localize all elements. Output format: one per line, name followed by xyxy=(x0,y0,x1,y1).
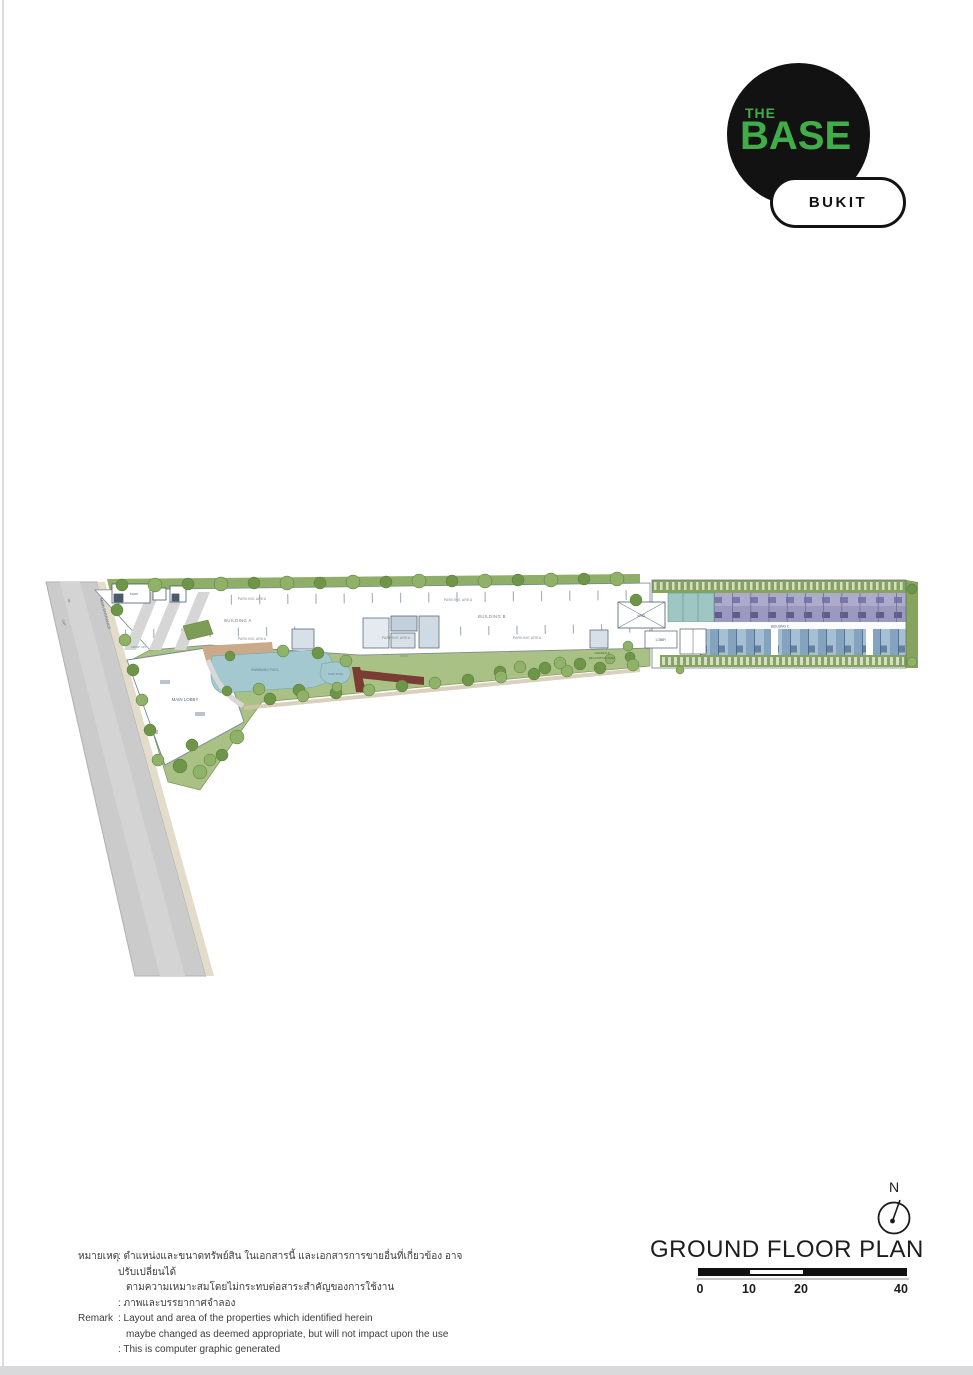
remark-block: หมายเหตุ : ตำแหน่งและขนาดทรัพย์สิน ในเอก… xyxy=(78,1249,478,1358)
remark-thai-line1: : ตำแหน่งและขนาดทรัพย์สิน ในเอกสารนี้ แล… xyxy=(118,1249,478,1280)
remark-thai-label: หมายเหตุ xyxy=(78,1249,118,1280)
remark-thai-line3: : ภาพและบรรยากาศจำลอง xyxy=(118,1296,235,1312)
plan-title: GROUND FLOOR PLAN xyxy=(650,1236,912,1264)
scale-tick-40: 40 xyxy=(889,1282,913,1296)
label-building-b: BUILDING B xyxy=(478,614,506,619)
remark-en-line1: : Layout and area of the properties whic… xyxy=(118,1311,373,1327)
brochure-page: THE BASE BUKIT xyxy=(0,0,973,1375)
scale-tick-0: 0 xyxy=(688,1282,712,1296)
logo-base-text: BASE xyxy=(740,114,851,159)
scale-tick-10: 10 xyxy=(737,1282,761,1296)
label-building-c: BUILDING C xyxy=(771,625,790,629)
label-parking-5: PARKING AREA xyxy=(513,636,542,640)
label-garden-2: RELAXATION AREA xyxy=(589,656,616,660)
label-lobby: LOBBY xyxy=(656,638,668,642)
scale-bar xyxy=(698,1268,907,1276)
label-garden-1: GARDEN & xyxy=(594,651,609,655)
label-swimming-pool: SWIMMING POOL xyxy=(251,668,279,672)
remark-en-line3: : This is computer graphic generated xyxy=(118,1342,280,1358)
scale-seg-2 xyxy=(750,1268,803,1276)
project-badge-label: BUKIT xyxy=(809,194,867,211)
north-arrow: N xyxy=(873,1178,915,1240)
north-label: N xyxy=(889,1179,899,1195)
remark-thai-line2: ตามความเหมาะสมโดยไม่กระทบต่อสาระสำคัญของ… xyxy=(118,1280,394,1296)
label-drop-off: DROP OFF xyxy=(132,645,147,649)
label-main-lobby: MAIN LOBBY xyxy=(172,697,199,702)
label-parking-2: PARKING AREA xyxy=(238,637,267,641)
scale-tick-20: 20 xyxy=(789,1282,813,1296)
scale-seg-1 xyxy=(698,1268,750,1276)
remark-en-line2: maybe changed as deemed appropriate, but… xyxy=(118,1327,448,1343)
ground-floor-plan: PARKING AREA PARKING AREA PARKING AREA P… xyxy=(0,560,973,990)
scale-seg-3 xyxy=(803,1268,907,1276)
label-kids-pool: KIDS POOL xyxy=(328,672,344,676)
label-building-a: BUILDING A xyxy=(224,618,252,623)
project-badge: BUKIT xyxy=(770,177,906,228)
label-ramp: RAMP xyxy=(400,654,408,658)
label-void: VOID xyxy=(637,614,645,618)
label-parking-4: PARKING AREA xyxy=(382,636,411,640)
remark-en-label: Remark xyxy=(78,1311,118,1327)
page-edge-bottom xyxy=(0,1366,973,1375)
label-parking-1: PARKING AREA xyxy=(238,597,267,601)
label-parking-3: PARKING AREA xyxy=(444,598,473,602)
scale-bar-baseline xyxy=(696,1278,909,1280)
label-shop: SHOP xyxy=(130,592,139,596)
